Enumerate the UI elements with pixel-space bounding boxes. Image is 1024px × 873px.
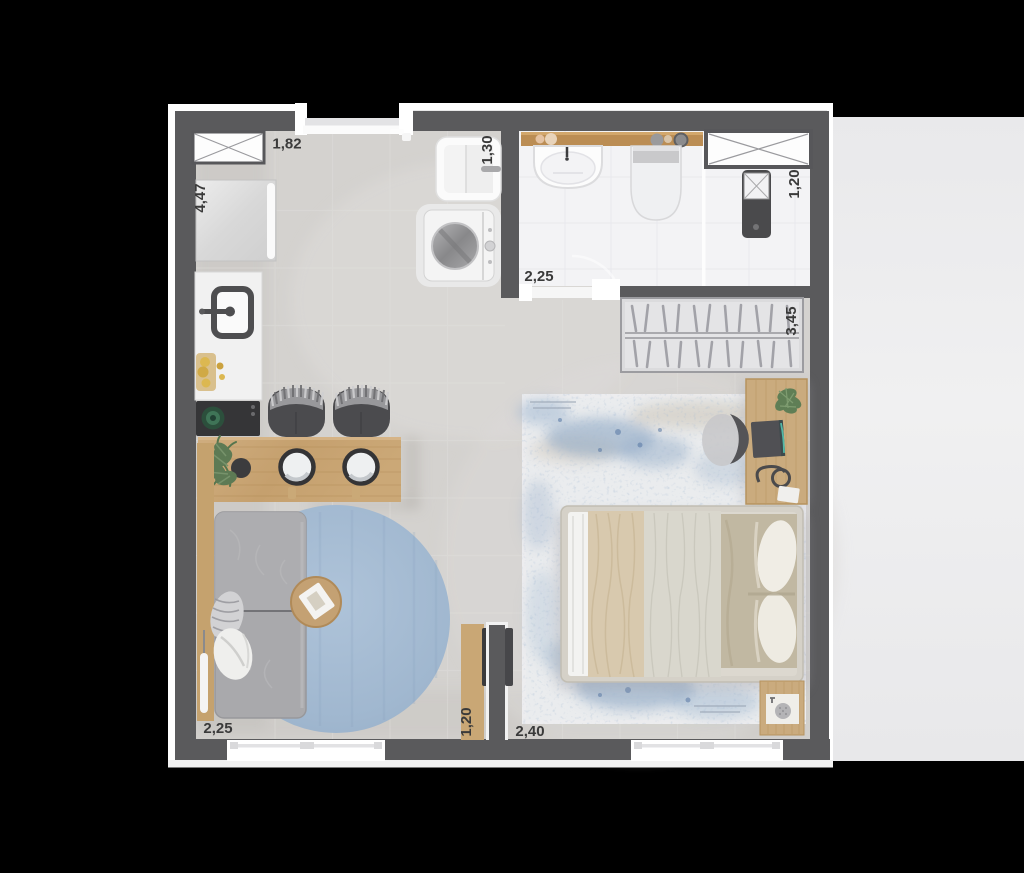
svg-text:4,47: 4,47 bbox=[192, 183, 209, 212]
svg-text:1,30: 1,30 bbox=[479, 135, 496, 164]
svg-text:1,20: 1,20 bbox=[458, 707, 475, 736]
svg-text:2,25: 2,25 bbox=[524, 268, 553, 285]
svg-text:3,45: 3,45 bbox=[783, 306, 800, 335]
svg-text:1,82: 1,82 bbox=[272, 136, 301, 153]
svg-text:2,40: 2,40 bbox=[515, 723, 544, 740]
svg-text:1,20: 1,20 bbox=[786, 169, 803, 198]
svg-text:2,25: 2,25 bbox=[203, 720, 232, 737]
